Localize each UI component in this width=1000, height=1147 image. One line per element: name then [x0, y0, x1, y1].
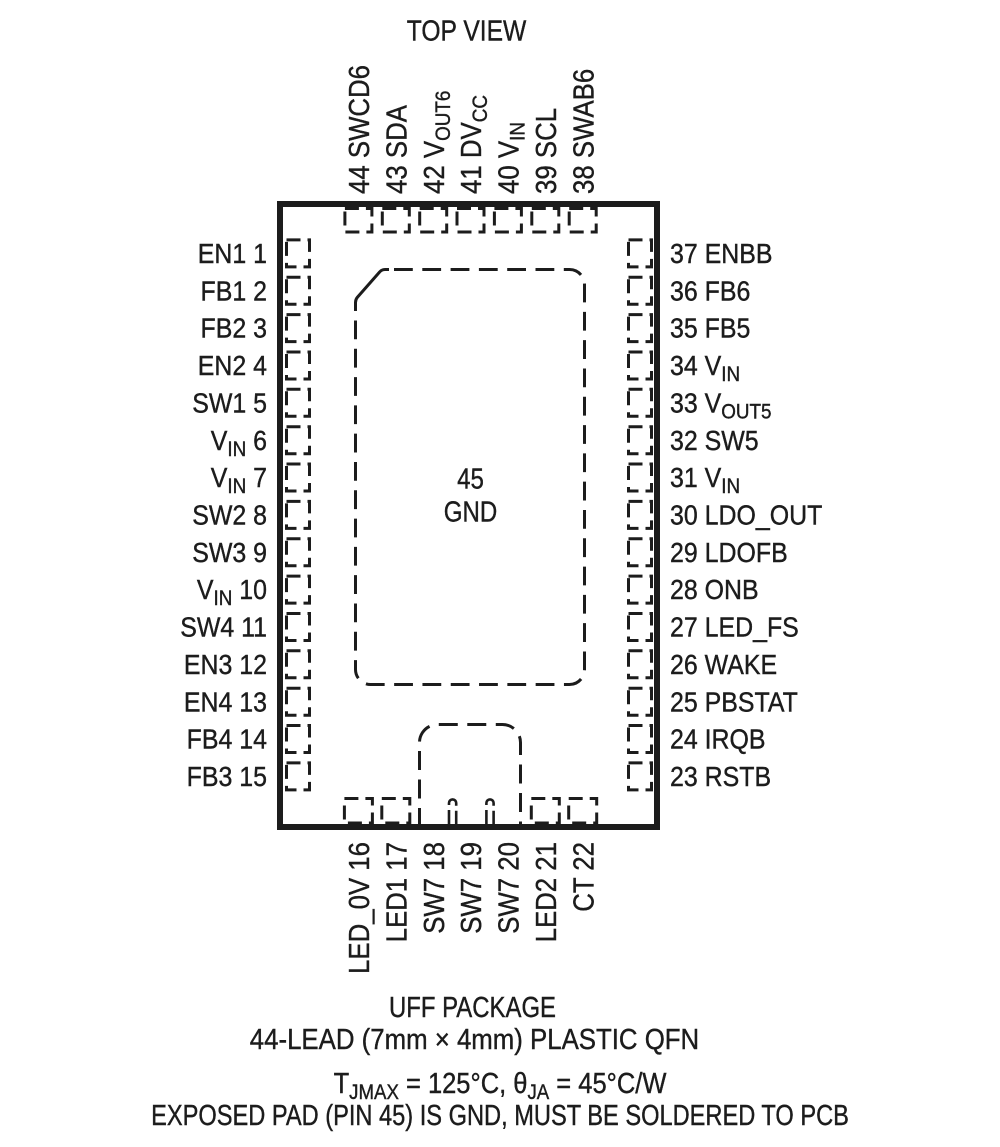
svg-text:29 LDOFB: 29 LDOFB: [670, 537, 788, 569]
svg-text:GND: GND: [444, 495, 497, 528]
svg-text:30 LDO_OUT: 30 LDO_OUT: [670, 499, 822, 531]
svg-text:SW4 11: SW4 11: [180, 611, 267, 643]
svg-text:35 FB5: 35 FB5: [670, 312, 750, 344]
svg-text:EN3 12: EN3 12: [184, 649, 267, 681]
svg-text:UFF PACKAGE: UFF PACKAGE: [389, 991, 556, 1024]
svg-text:27 LED_FS: 27 LED_FS: [670, 611, 799, 643]
svg-text:32 SW5: 32 SW5: [670, 424, 759, 456]
svg-text:38 SWAB6: 38 SWAB6: [567, 69, 600, 194]
svg-text:SW7 20: SW7 20: [492, 842, 525, 934]
svg-text:39 SCL: 39 SCL: [529, 108, 562, 194]
svg-text:FB2 3: FB2 3: [201, 312, 267, 344]
svg-text:SW2 8: SW2 8: [192, 499, 267, 531]
svg-text:37 ENBB: 37 ENBB: [670, 238, 772, 270]
svg-text:SW1 5: SW1 5: [192, 387, 267, 419]
svg-text:VIN 10: VIN 10: [197, 574, 267, 611]
svg-text:LED1 17: LED1 17: [380, 842, 413, 942]
svg-text:EN1 1: EN1 1: [198, 238, 267, 270]
svg-text:24 IRQB: 24 IRQB: [670, 723, 766, 755]
svg-text:EN2 4: EN2 4: [198, 350, 267, 382]
svg-text:LED2 21: LED2 21: [529, 842, 562, 942]
svg-text:SW7 18: SW7 18: [417, 842, 450, 934]
svg-text:44-LEAD (7mm × 4mm) PLASTIC QF: 44-LEAD (7mm × 4mm) PLASTIC QFN: [250, 1023, 699, 1056]
svg-text:45: 45: [457, 462, 484, 495]
svg-text:SW7 19: SW7 19: [455, 842, 488, 934]
svg-text:SW3 9: SW3 9: [192, 537, 267, 569]
svg-text:43 SDA: 43 SDA: [380, 104, 413, 194]
svg-text:26 WAKE: 26 WAKE: [670, 649, 777, 681]
svg-text:FB3 15: FB3 15: [187, 761, 267, 793]
svg-text:28 ONB: 28 ONB: [670, 574, 759, 606]
svg-text:EXPOSED PAD (PIN 45) IS GND, M: EXPOSED PAD (PIN 45) IS GND, MUST BE SOL…: [151, 1099, 849, 1132]
svg-text:25 PBSTAT: 25 PBSTAT: [670, 686, 798, 718]
svg-text:EN4 13: EN4 13: [184, 686, 267, 718]
svg-text:LED_0V 16: LED_0V 16: [343, 842, 376, 974]
svg-text:FB4 14: FB4 14: [187, 723, 267, 755]
svg-text:23 RSTB: 23 RSTB: [670, 761, 771, 793]
svg-text:36 FB6: 36 FB6: [670, 275, 750, 307]
svg-text:44 SWCD6: 44 SWCD6: [343, 65, 376, 194]
svg-text:TOP VIEW: TOP VIEW: [407, 15, 527, 47]
svg-text:FB1 2: FB1 2: [201, 275, 267, 307]
svg-text:CT 22: CT 22: [567, 842, 600, 912]
